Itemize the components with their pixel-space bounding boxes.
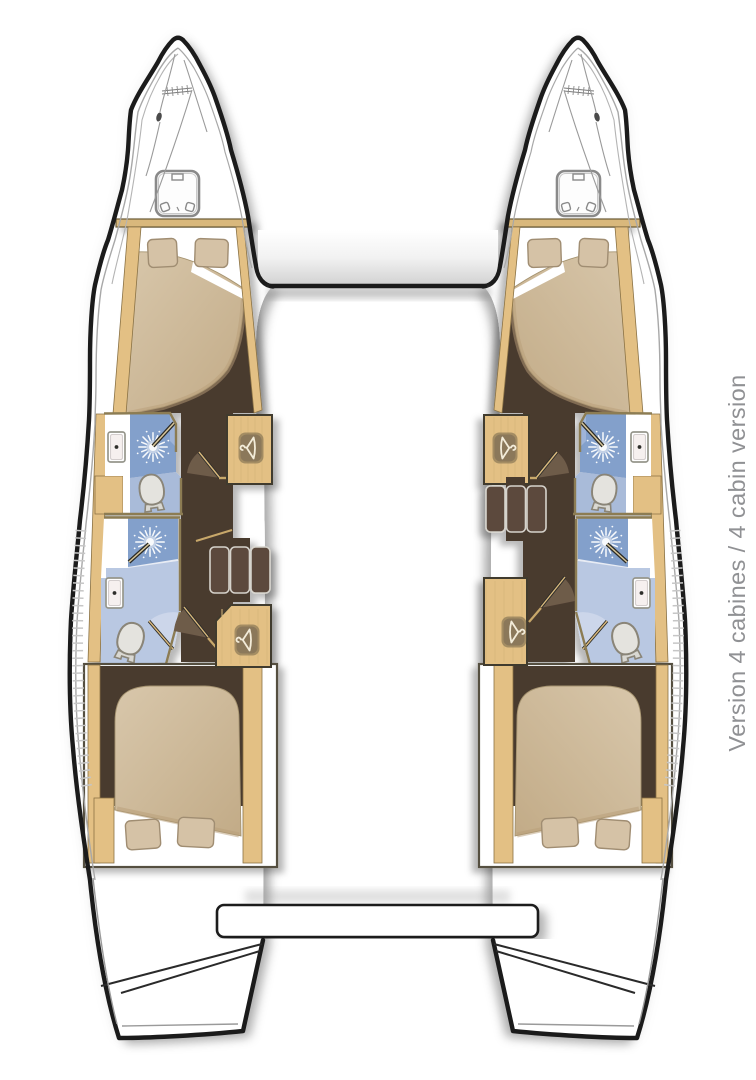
svg-text:Version 4 cabines / 4 cabin ve: Version 4 cabines / 4 cabin version	[724, 374, 750, 751]
